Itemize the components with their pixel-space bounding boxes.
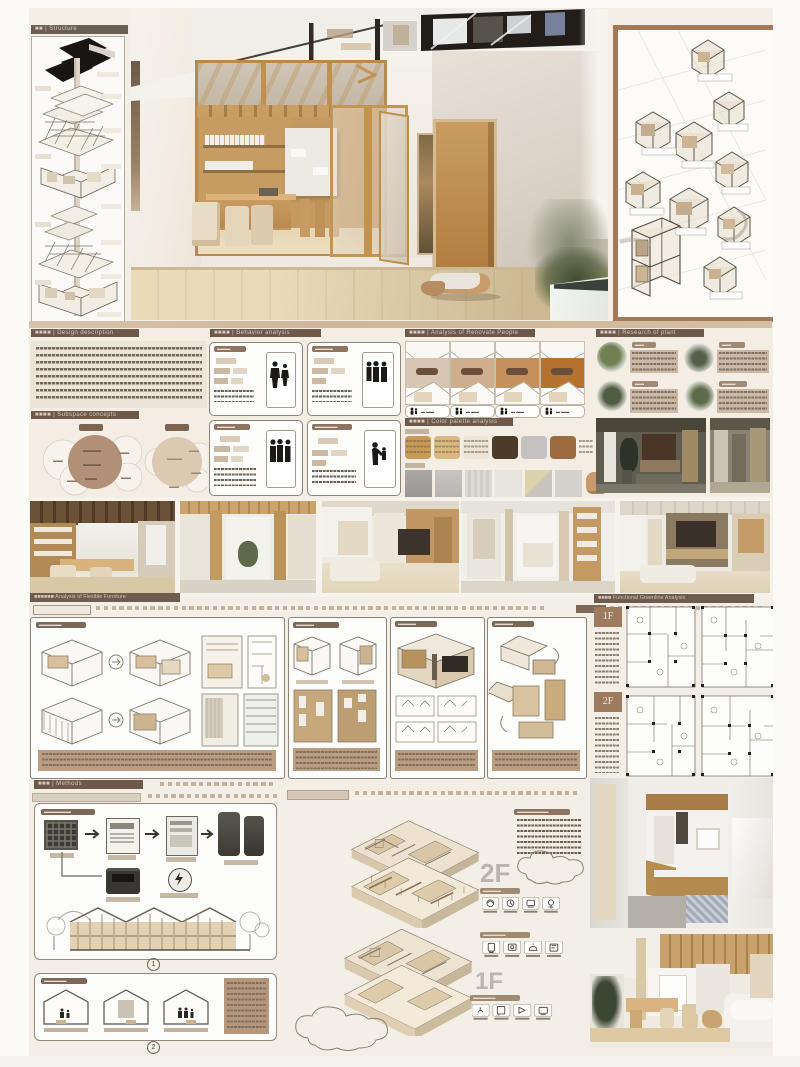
svg-text:▬▬▬: ▬▬▬ xyxy=(83,462,101,468)
svg-text:▬ ▬▬: ▬ ▬▬ xyxy=(511,409,524,414)
svg-text:▬▬: ▬▬ xyxy=(191,470,201,476)
svg-text:▬▬: ▬▬ xyxy=(189,448,199,454)
svg-text:▬▬▬: ▬▬▬ xyxy=(83,448,101,454)
svg-text:▬▬: ▬▬ xyxy=(169,484,179,490)
svg-text:▬▬: ▬▬ xyxy=(67,478,77,484)
svg-text:▬▬: ▬▬ xyxy=(121,475,131,481)
svg-text:▬▬: ▬▬ xyxy=(53,458,63,464)
svg-text:▬ ▬▬: ▬ ▬▬ xyxy=(421,409,434,414)
svg-text:▬ ▬▬: ▬ ▬▬ xyxy=(466,409,479,414)
svg-text:▬▬▬: ▬▬▬ xyxy=(167,456,182,462)
svg-text:▬▬: ▬▬ xyxy=(119,450,129,456)
svg-text:▬▬: ▬▬ xyxy=(85,476,97,482)
svg-text:▬ ▬▬: ▬ ▬▬ xyxy=(556,409,569,414)
